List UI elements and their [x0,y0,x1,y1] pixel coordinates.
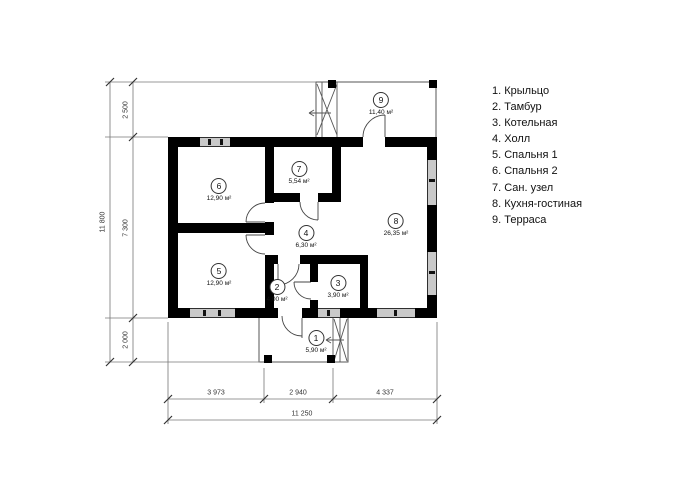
wall-boiler-right [360,264,368,308]
room-label-bedroom1: 5 12,90 м² [207,261,232,287]
wall-bath-bottom-b [318,193,341,202]
dim-bottom-seg-2: 2 940 [289,390,307,397]
dimension-lines [105,82,437,424]
room-label-tambur: 2 4,00 м² [266,277,287,303]
room-number-badge: 4 [298,225,314,241]
room-label-hall: 4 6,30 м² [295,223,316,249]
wall-divider-stub [265,222,274,235]
dimension-ticks [106,78,441,424]
window-mullion [203,310,206,316]
room-number-badge: 5 [211,263,227,279]
legend-item-3: 3. Котельная [492,115,582,131]
wall-bottom-c [302,308,318,318]
window-bedroom1 [190,308,235,318]
dim-bottom-seg-1: 3 973 [207,390,225,397]
legend-item-4: 4. Холл [492,131,582,147]
wall-tambur-boiler-a [310,264,318,282]
wall-left [168,137,178,318]
room-number-badge: 3 [330,275,346,291]
window-mullion [208,139,211,145]
wall-bottom-e [415,308,437,318]
door-tambur-boiler [294,282,311,299]
window-mullion [218,310,221,316]
wall-tambur-boiler-b [310,300,318,308]
room-area: 5,90 м² [305,347,326,354]
room-number-badge: 2 [269,279,285,295]
room-label-porch: 1 5,90 м² [305,328,326,354]
door-terrace [363,115,385,137]
door-porch [282,316,302,338]
dim-left-total: 11 800 [100,212,107,233]
wall-bath-right [332,147,341,193]
terrace-stairs-symbol [309,82,337,137]
legend-item-7: 7. Сан. узел [492,180,582,196]
legend-item-5: 5. Спальня 1 [492,147,582,163]
wall-bedrooms-divider [178,223,265,233]
window-mullion [220,139,223,145]
window-kitchen-east-1 [427,160,437,205]
room-area: 12,90 м² [207,280,232,287]
room-number-badge: 7 [291,161,307,177]
dim-left-seg-3: 2 000 [123,331,130,349]
room-area: 11,40 м² [369,109,393,116]
window-mullion [394,310,397,316]
dim-left-seg-2: 7 300 [123,219,130,237]
room-area: 26,35 м² [384,230,409,237]
legend-item-6: 6. Спальня 2 [492,163,582,179]
room-number-badge: 9 [373,92,389,108]
room-legend: 1. Крыльцо 2. Тамбур 3. Котельная 4. Хол… [492,83,582,228]
wall-top-b [230,137,363,147]
wall-bottom-a [168,308,190,318]
legend-item-9: 9. Терраса [492,212,582,228]
legend-item-2: 2. Тамбур [492,99,582,115]
room-area: 5,54 м² [288,178,309,185]
floor-plan-page: 9 11,40 м² 6 12,90 м² 7 5,54 м² 4 6,30 м… [0,0,685,502]
wall-right-b [427,205,437,252]
room-number-badge: 6 [211,178,227,194]
door-room6 [246,203,265,222]
plan-linework [0,0,685,502]
porch-column-left [264,355,272,363]
terrace-column-right [429,80,437,88]
room-label-boiler: 3 3,90 м² [327,273,348,299]
wall-right-a [427,137,437,160]
window-mullion [429,271,435,274]
wall-tambur-top-a [265,255,278,264]
legend-item-1: 1. Крыльцо [492,83,582,99]
room-area: 3,90 м² [327,292,348,299]
door-room5 [246,235,265,254]
dim-bottom-seg-3: 4 337 [376,390,394,397]
wall-bath-bottom-a [265,193,300,202]
window-mullion [327,310,330,316]
room-label-bathroom: 7 5,54 м² [288,159,309,185]
window-mullion [429,179,435,182]
room-area: 12,90 м² [207,195,232,202]
room-number-badge: 8 [388,213,404,229]
legend-item-8: 8. Кухня-гостиная [492,196,582,212]
terrace-column-left [328,80,336,88]
room-area: 4,00 м² [266,296,287,303]
door-room7 [300,202,318,220]
room-label-terrace: 9 11,40 м² [369,90,393,116]
room-area: 6,30 м² [295,242,316,249]
room-label-kitchen: 8 26,35 м² [384,211,409,237]
dim-bottom-total: 11 250 [292,411,313,418]
wall-tambur-top-b [300,255,368,264]
room-label-bedroom2: 6 12,90 м² [207,176,232,202]
wall-bottom-d [340,308,377,318]
room-number-badge: 1 [308,330,324,346]
wall-bottom-b [235,308,278,318]
window-bedroom2 [200,137,230,147]
porch-column-right [327,355,335,363]
dim-left-seg-1: 2 500 [123,101,130,119]
